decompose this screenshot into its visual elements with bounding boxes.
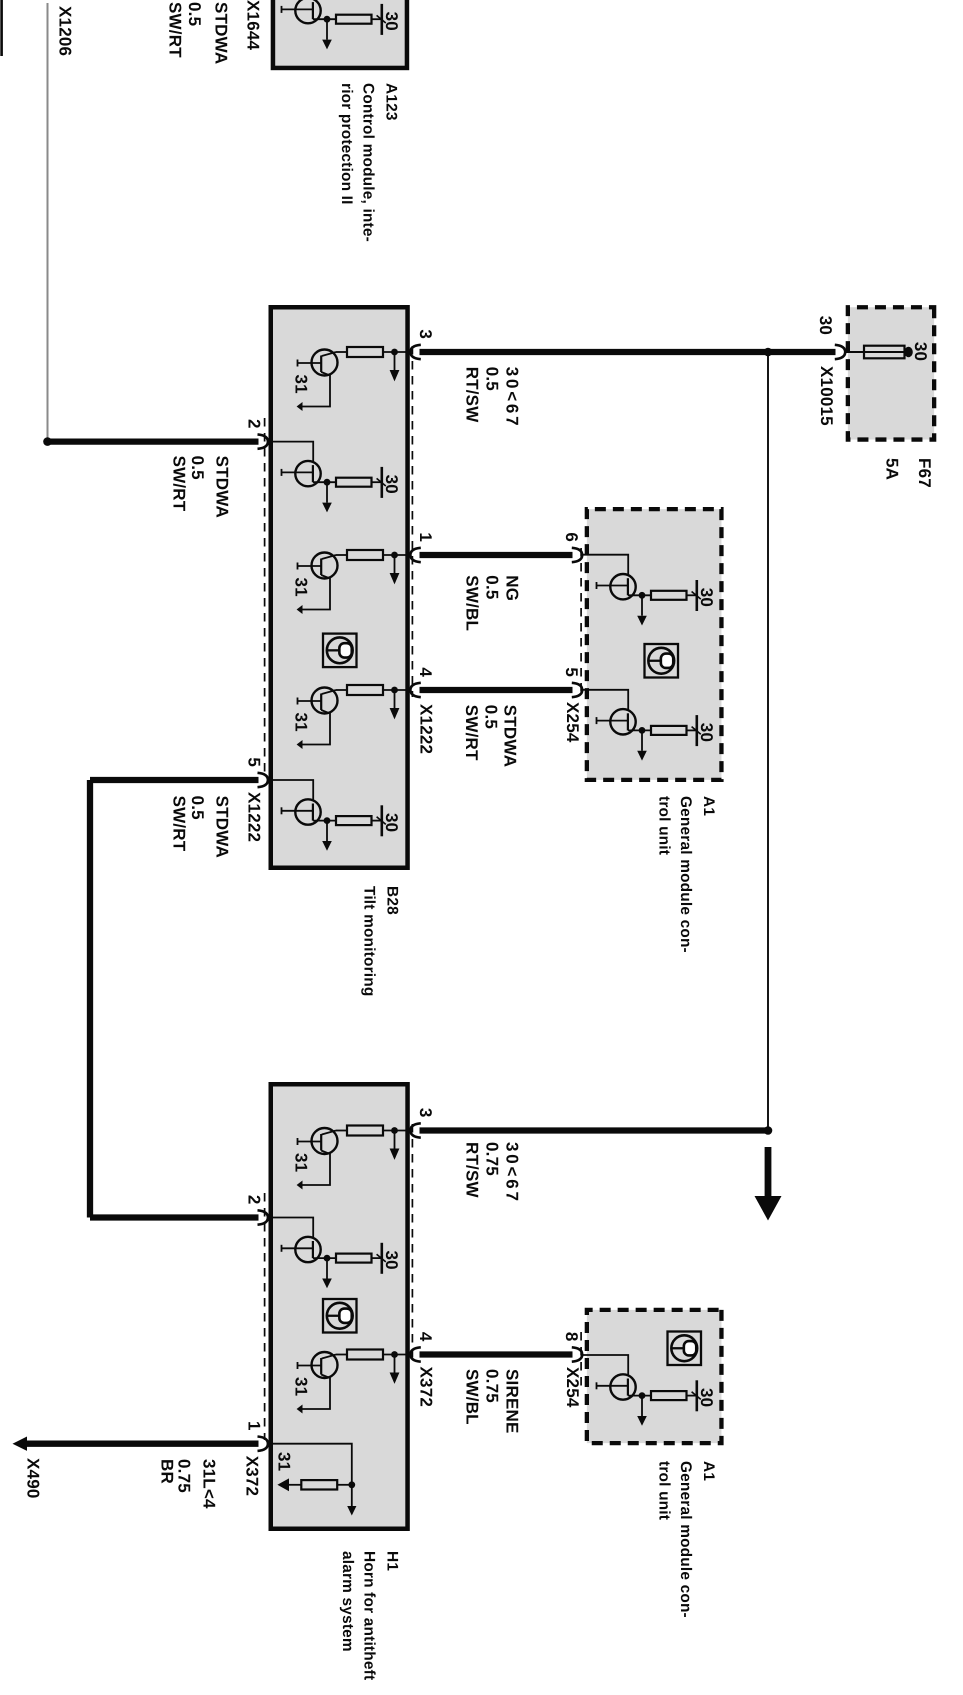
svg-text:SIRENE: SIRENE — [503, 1369, 522, 1434]
svg-text:0.75: 0.75 — [175, 1459, 194, 1493]
svg-text:0.75: 0.75 — [483, 1142, 502, 1176]
svg-text:31: 31 — [292, 375, 311, 394]
svg-text:3: 3 — [416, 329, 435, 339]
svg-text:X372: X372 — [243, 1456, 262, 1497]
svg-text:SW/RT: SW/RT — [170, 456, 189, 512]
svg-text:4: 4 — [416, 1332, 435, 1342]
svg-text:X254: X254 — [563, 702, 582, 743]
svg-text:0.5: 0.5 — [482, 705, 501, 729]
svg-text:SW/BL: SW/BL — [463, 575, 482, 631]
svg-text:STDWA: STDWA — [213, 456, 232, 518]
svg-text:alarm system: alarm system — [339, 1551, 356, 1652]
svg-text:SW/RT: SW/RT — [462, 705, 481, 761]
svg-text:30: 30 — [911, 342, 930, 361]
svg-text:A123: A123 — [383, 83, 400, 121]
svg-text:30: 30 — [697, 723, 716, 742]
svg-text:SW/RT: SW/RT — [166, 2, 185, 58]
svg-text:0.5: 0.5 — [188, 796, 207, 820]
svg-text:30: 30 — [382, 12, 401, 31]
svg-text:SW/BL: SW/BL — [463, 1369, 482, 1425]
svg-text:2: 2 — [245, 419, 264, 429]
svg-text:31: 31 — [292, 578, 311, 597]
svg-text:1: 1 — [245, 1421, 264, 1431]
svg-text:trol unit: trol unit — [656, 1461, 673, 1520]
svg-text:STDWA: STDWA — [501, 705, 520, 767]
svg-text:X1644: X1644 — [244, 0, 263, 51]
svg-text:2: 2 — [245, 1195, 264, 1205]
svg-text:0.5: 0.5 — [185, 2, 204, 26]
svg-text:X1206: X1206 — [56, 6, 75, 56]
svg-text:Control module, inte-: Control module, inte- — [359, 83, 376, 242]
svg-text:3: 3 — [416, 1108, 435, 1118]
svg-text:31: 31 — [292, 1377, 311, 1396]
svg-text:30<67: 30<67 — [503, 1142, 522, 1204]
svg-text:H1: H1 — [384, 1551, 401, 1571]
svg-text:0.5: 0.5 — [483, 367, 502, 391]
svg-text:A1: A1 — [700, 1461, 717, 1481]
svg-text:6: 6 — [562, 532, 581, 542]
svg-text:F67: F67 — [915, 458, 934, 488]
svg-text:30: 30 — [816, 316, 835, 335]
svg-text:BR: BR — [158, 1459, 177, 1484]
svg-text:X1222: X1222 — [245, 792, 264, 842]
svg-text:General module con-: General module con- — [677, 1461, 694, 1618]
svg-text:X254: X254 — [563, 1367, 582, 1408]
svg-text:30: 30 — [382, 475, 401, 494]
svg-text:STDWA: STDWA — [213, 796, 232, 858]
svg-text:RT/SW: RT/SW — [463, 1142, 482, 1199]
svg-text:0.5: 0.5 — [483, 575, 502, 599]
svg-text:30: 30 — [382, 813, 401, 832]
svg-text:31: 31 — [292, 1153, 311, 1172]
svg-text:4: 4 — [416, 667, 435, 677]
svg-text:30: 30 — [697, 588, 716, 607]
svg-text:Horn for antitheft: Horn for antitheft — [360, 1551, 377, 1680]
svg-text:trol unit: trol unit — [656, 796, 673, 855]
svg-text:STDWA: STDWA — [212, 2, 231, 64]
svg-text:Tilt monitoring: Tilt monitoring — [360, 886, 377, 996]
svg-text:X490: X490 — [24, 1458, 43, 1499]
svg-text:X1222: X1222 — [417, 704, 436, 754]
svg-text:30<67: 30<67 — [503, 367, 522, 429]
svg-text:X372: X372 — [417, 1367, 436, 1408]
svg-text:SW/RT: SW/RT — [170, 796, 189, 852]
svg-text:X10015: X10015 — [817, 366, 836, 426]
svg-text:5: 5 — [562, 667, 581, 677]
svg-text:31L<4: 31L<4 — [200, 1459, 219, 1509]
svg-text:B28: B28 — [384, 886, 401, 915]
svg-text:rior protection II: rior protection II — [338, 83, 355, 205]
svg-text:A1: A1 — [700, 796, 717, 816]
svg-text:5: 5 — [245, 757, 264, 767]
svg-text:NG: NG — [503, 575, 522, 601]
svg-text:8: 8 — [562, 1332, 581, 1342]
svg-text:31: 31 — [292, 713, 311, 732]
svg-text:1: 1 — [416, 532, 435, 542]
svg-text:General module con-: General module con- — [677, 796, 694, 953]
svg-text:5A: 5A — [883, 458, 902, 480]
svg-text:30: 30 — [382, 1251, 401, 1270]
svg-text:0.75: 0.75 — [483, 1369, 502, 1403]
svg-text:RT/SW: RT/SW — [463, 367, 482, 424]
svg-text:30: 30 — [697, 1388, 716, 1407]
svg-text:0.5: 0.5 — [188, 456, 207, 480]
svg-text:31: 31 — [275, 1452, 294, 1471]
